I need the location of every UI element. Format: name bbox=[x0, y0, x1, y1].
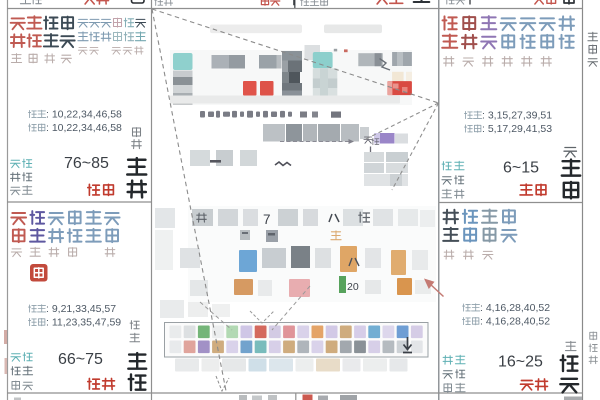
svg-text:6~15: 6~15 bbox=[503, 160, 539, 177]
svg-text:: 10,22,34,46,58: : 10,22,34,46,58 bbox=[46, 122, 122, 134]
svg-text:: 10,22,34,46,58: : 10,22,34,46,58 bbox=[46, 109, 122, 121]
svg-text:: 9,21,33,45,57: : 9,21,33,45,57 bbox=[46, 303, 116, 315]
svg-text:: 4,16,28,40,52: : 4,16,28,40,52 bbox=[480, 302, 550, 314]
svg-text:20: 20 bbox=[347, 281, 359, 293]
svg-text:: 5,17,29,41,53: : 5,17,29,41,53 bbox=[482, 123, 552, 135]
svg-text:66~75: 66~75 bbox=[58, 351, 103, 368]
svg-text:: 4,16,28,40,52: : 4,16,28,40,52 bbox=[480, 316, 550, 328]
svg-text:: 11,23,35,47,59: : 11,23,35,47,59 bbox=[46, 317, 121, 329]
svg-text:7: 7 bbox=[263, 212, 271, 227]
svg-text:: 3,15,27,39,51: : 3,15,27,39,51 bbox=[482, 110, 552, 122]
svg-text:16~25: 16~25 bbox=[498, 354, 543, 371]
svg-text:76~85: 76~85 bbox=[64, 155, 109, 172]
